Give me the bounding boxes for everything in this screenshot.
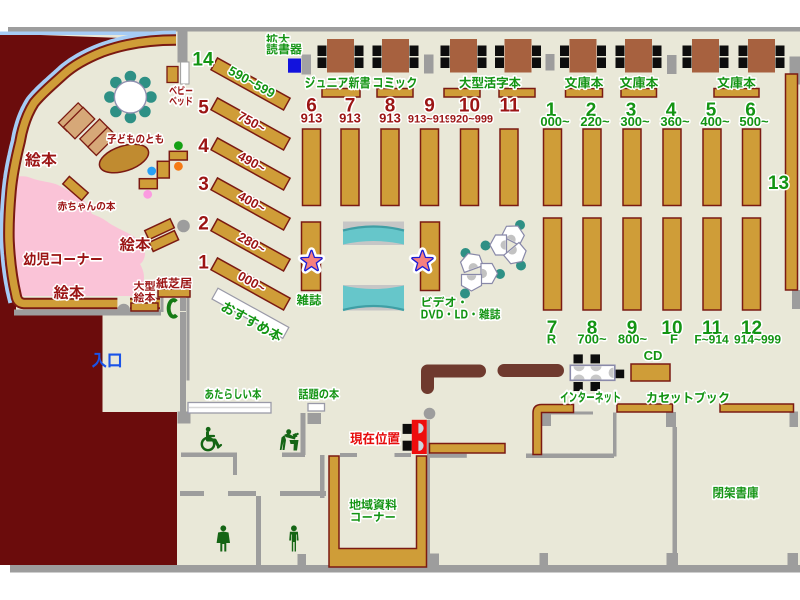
svg-text:5: 5 xyxy=(198,98,209,119)
svg-text:300~: 300~ xyxy=(620,114,650,129)
svg-text:CD: CD xyxy=(644,348,663,363)
svg-text:920~999: 920~999 xyxy=(450,114,493,126)
svg-text:913: 913 xyxy=(301,111,323,126)
svg-text:R: R xyxy=(547,332,557,347)
svg-text:3: 3 xyxy=(198,174,209,195)
svg-text:13: 13 xyxy=(768,173,789,194)
svg-text:000~: 000~ xyxy=(540,114,570,129)
svg-text:F~914: F~914 xyxy=(694,333,729,347)
svg-text:2: 2 xyxy=(198,214,209,235)
svg-text:360~: 360~ xyxy=(660,114,690,129)
svg-text:914~999: 914~999 xyxy=(734,333,781,347)
svg-text:700~: 700~ xyxy=(577,332,607,347)
svg-text:4: 4 xyxy=(198,136,209,157)
svg-text:913: 913 xyxy=(379,111,401,126)
svg-text:1: 1 xyxy=(198,253,209,274)
svg-text:800~: 800~ xyxy=(618,332,648,347)
svg-text:F: F xyxy=(670,332,678,347)
svg-text:11: 11 xyxy=(499,96,520,117)
svg-text:913~919: 913~919 xyxy=(408,114,451,126)
svg-text:500~: 500~ xyxy=(739,114,769,129)
svg-text:220~: 220~ xyxy=(580,114,610,129)
svg-text:913: 913 xyxy=(339,111,361,126)
svg-text:14: 14 xyxy=(192,50,214,71)
svg-text:400~: 400~ xyxy=(700,114,730,129)
